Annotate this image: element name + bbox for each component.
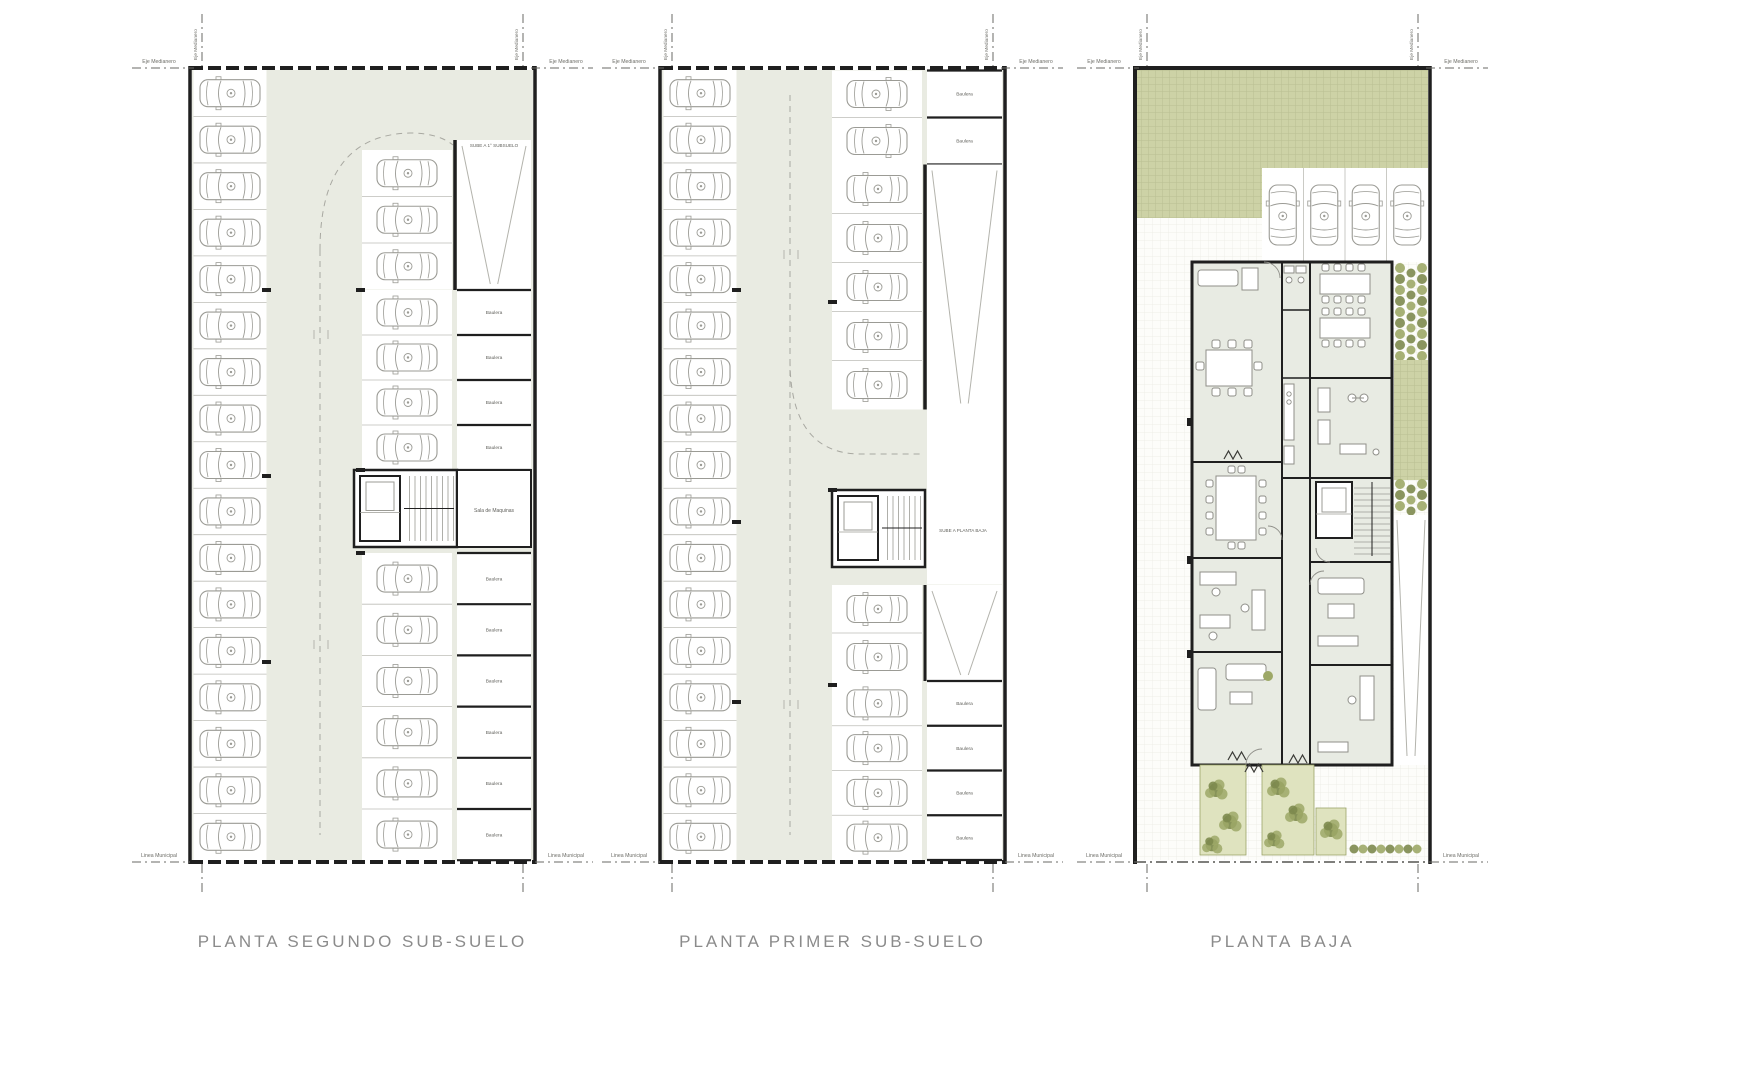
- parking-column: [832, 165, 922, 410]
- elevator-icon: [1316, 482, 1352, 538]
- parking-column: [362, 553, 452, 860]
- column-marker: [356, 288, 365, 292]
- surface-parking: [1262, 168, 1428, 262]
- plans-drawing: SUBE A 1° SUBSUELOBauleraBauleraBauleraB…: [0, 0, 1740, 1080]
- car-icon: [200, 356, 260, 389]
- column-marker: [732, 288, 741, 292]
- car-icon: [200, 588, 260, 621]
- car-icon: [200, 681, 260, 714]
- ramp: [927, 585, 1002, 681]
- car-icon: [670, 216, 730, 249]
- eje-medianero-label: Eje Medianero: [1444, 59, 1478, 65]
- garden-strip: [1394, 360, 1428, 480]
- baulera-label: Baulera: [956, 701, 973, 707]
- linea-municipal-label: Linea Municipal: [611, 853, 647, 859]
- car-icon: [847, 369, 907, 402]
- ramp-landing: [927, 410, 1002, 585]
- baulera-storage-column: BauleraBauleraBauleraBaulera: [927, 681, 1002, 860]
- car-icon: [377, 203, 437, 236]
- car-icon: [200, 309, 260, 342]
- car-icon: [847, 732, 907, 765]
- baulera-label: Baulera: [956, 791, 973, 797]
- parking-column: [664, 70, 737, 860]
- car-icon: [670, 634, 730, 667]
- baulera-label: Baulera: [486, 400, 503, 406]
- baulera-storage-column: BauleraBauleraBauleraBaulera: [457, 290, 531, 470]
- car-icon: [377, 613, 437, 646]
- car-icon: [847, 776, 907, 809]
- car-icon: [670, 541, 730, 574]
- baulera-label: Baulera: [956, 746, 973, 752]
- column-marker: [732, 520, 741, 524]
- car-icon: [377, 296, 437, 329]
- baulera-label: Baulera: [486, 628, 503, 634]
- column-marker: [356, 468, 365, 472]
- linea-municipal-label: Linea Municipal: [1018, 853, 1054, 859]
- parking-column: [832, 585, 922, 681]
- car-icon: [847, 271, 907, 304]
- linea-municipal-label: Linea Municipal: [1086, 853, 1122, 859]
- car-icon: [670, 170, 730, 203]
- plan-title-segundo-subsuelo: PLANTA SEGUNDO SUB-SUELO: [190, 932, 535, 958]
- column-marker: [356, 551, 365, 555]
- column-marker: [262, 288, 271, 292]
- column-marker: [828, 300, 837, 304]
- floor-plan-sheet: SUBE A 1° SUBSUELOBauleraBauleraBauleraB…: [0, 0, 1740, 1080]
- eje-medianero-label: Eje Medianero: [549, 59, 583, 65]
- parking-column: [832, 681, 922, 860]
- column-marker: [1187, 418, 1193, 426]
- car-icon: [847, 593, 907, 626]
- column-marker: [1187, 650, 1193, 658]
- car-icon: [377, 386, 437, 419]
- car-icon: [1266, 185, 1299, 245]
- elevator-icon: [360, 476, 400, 541]
- baulera-label: Baulera: [486, 355, 503, 361]
- car-icon: [377, 341, 437, 374]
- machine-room-label: Sala de Maquinas: [474, 508, 515, 514]
- car-icon: [377, 157, 437, 190]
- eje-medianero-label: Eje Medianero: [1019, 59, 1053, 65]
- car-icon: [377, 716, 437, 749]
- eje-medianero-label: Eje Medianero: [663, 29, 669, 60]
- baulera-label: Baulera: [486, 832, 503, 838]
- column-marker: [828, 683, 837, 687]
- car-icon: [200, 216, 260, 249]
- eje-medianero-label: Eje Medianero: [1087, 59, 1121, 65]
- car-icon: [847, 641, 907, 674]
- column-marker: [262, 660, 271, 664]
- car-icon: [670, 774, 730, 807]
- car-icon: [847, 173, 907, 206]
- parking-column: [832, 71, 922, 165]
- baulera-storage-column: BauleraBaulera: [927, 71, 1002, 165]
- ramp: [927, 165, 1002, 410]
- parking-column: [362, 290, 452, 470]
- car-icon: [670, 356, 730, 389]
- baulera-label: Baulera: [956, 92, 973, 98]
- car-icon: [1308, 185, 1341, 245]
- baulera-label: Baulera: [486, 445, 503, 451]
- column-marker: [828, 488, 837, 492]
- ramp: [457, 140, 531, 290]
- car-icon: [377, 818, 437, 851]
- car-icon: [200, 263, 260, 296]
- car-icon: [200, 727, 260, 760]
- eje-medianero-label: Eje Medianero: [1138, 29, 1144, 60]
- car-icon: [670, 727, 730, 760]
- linea-municipal-label: Linea Municipal: [548, 853, 584, 859]
- parking-column: [194, 70, 267, 860]
- car-icon: [670, 588, 730, 621]
- car-icon: [670, 263, 730, 296]
- car-icon: [200, 820, 260, 853]
- car-icon: [670, 309, 730, 342]
- car-icon: [377, 250, 437, 283]
- baulera-label: Baulera: [956, 139, 973, 145]
- baulera-label: Baulera: [486, 310, 503, 316]
- car-icon: [670, 123, 730, 156]
- car-icon: [847, 125, 907, 158]
- office-building: [1192, 262, 1392, 765]
- plan-planta-segundo-subsuelo: SUBE A 1° SUBSUELOBauleraBauleraBauleraB…: [132, 14, 593, 896]
- car-icon: [670, 681, 730, 714]
- eje-medianero-label: Eje Medianero: [984, 29, 990, 60]
- car-icon: [377, 665, 437, 698]
- car-icon: [377, 767, 437, 800]
- plan-title-primer-subsuelo: PLANTA PRIMER SUB-SUELO: [660, 932, 1005, 958]
- baulera-storage-column: BauleraBauleraBauleraBauleraBauleraBaule…: [457, 553, 531, 860]
- plan-planta-primer-subsuelo: BauleraBauleraBAJA A 2° SUBSUELOSUBE A P…: [602, 14, 1063, 896]
- car-icon: [847, 222, 907, 255]
- parking-column: [362, 150, 452, 290]
- eje-medianero-label: Eje Medianero: [612, 59, 646, 65]
- column-marker: [732, 700, 741, 704]
- baulera-label: Baulera: [956, 835, 973, 841]
- car-icon: [670, 820, 730, 853]
- car-icon: [200, 634, 260, 667]
- column-marker: [1187, 556, 1193, 564]
- plan-title-planta-baja: PLANTA BAJA: [1135, 932, 1430, 958]
- baulera-label: Baulera: [486, 576, 503, 582]
- car-icon: [847, 78, 907, 111]
- car-icon: [377, 431, 437, 464]
- linea-municipal-label: Linea Municipal: [1443, 853, 1479, 859]
- ramp-up-label: SUBE A PLANTA BAJA: [939, 528, 988, 533]
- car-icon: [200, 495, 260, 528]
- eje-medianero-label: Eje Medianero: [514, 29, 520, 60]
- car-icon: [847, 821, 907, 854]
- elevator-icon: [838, 496, 878, 560]
- car-icon: [200, 774, 260, 807]
- car-icon: [1349, 185, 1382, 245]
- car-icon: [847, 687, 907, 720]
- baulera-label: Baulera: [486, 679, 503, 685]
- eje-medianero-label: Eje Medianero: [1409, 29, 1415, 60]
- car-icon: [200, 541, 260, 574]
- car-icon: [200, 77, 260, 110]
- linea-municipal-label: Linea Municipal: [141, 853, 177, 859]
- car-icon: [670, 402, 730, 435]
- plan-planta-baja: Eje MedianeroEje MedianeroEje MedianeroE…: [1077, 14, 1488, 896]
- eje-medianero-label: Eje Medianero: [142, 59, 176, 65]
- car-icon: [847, 320, 907, 353]
- ramp-label: SUBE A 1° SUBSUELO: [470, 143, 519, 148]
- baulera-label: Baulera: [486, 781, 503, 787]
- car-icon: [670, 449, 730, 482]
- baulera-label: Baulera: [486, 730, 503, 736]
- car-icon: [670, 77, 730, 110]
- car-icon: [200, 123, 260, 156]
- ramp: [1394, 515, 1428, 765]
- car-icon: [200, 402, 260, 435]
- column-marker: [262, 474, 271, 478]
- car-icon: [1391, 185, 1424, 245]
- car-icon: [670, 495, 730, 528]
- car-icon: [200, 449, 260, 482]
- eje-medianero-label: Eje Medianero: [193, 29, 199, 60]
- car-icon: [200, 170, 260, 203]
- car-icon: [377, 562, 437, 595]
